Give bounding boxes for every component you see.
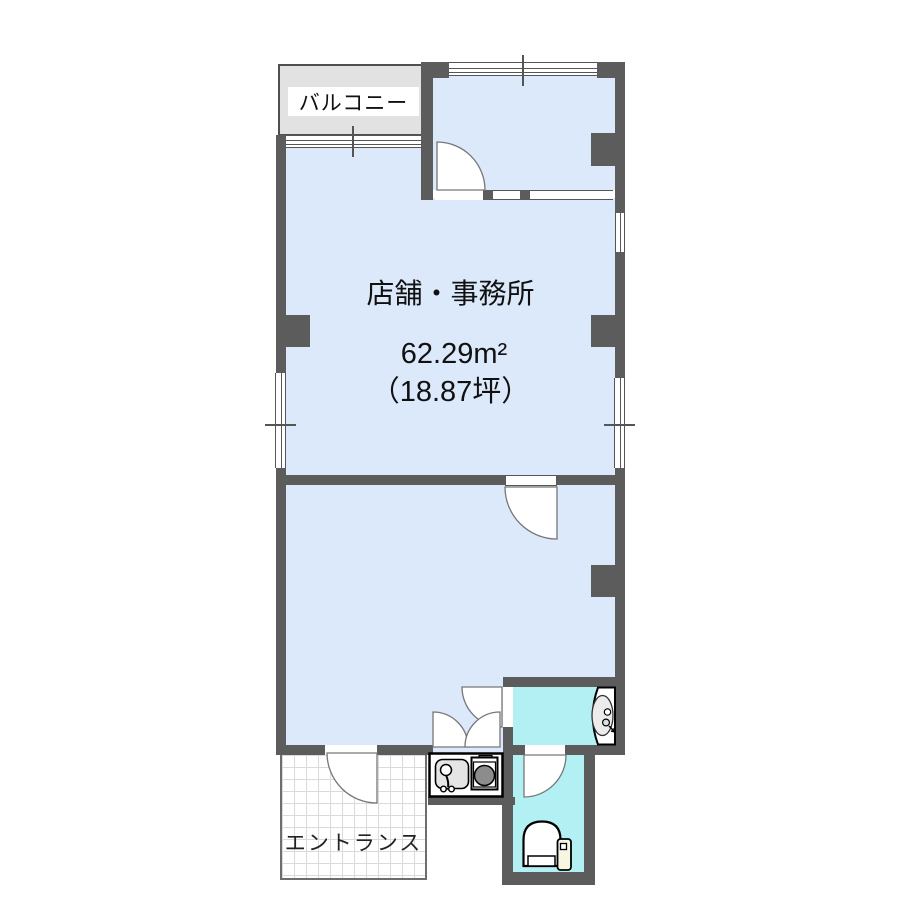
door-opening-washroom xyxy=(503,687,513,727)
kitchen-unit xyxy=(430,754,503,797)
room-fill-washroom xyxy=(513,687,615,745)
wall-ne-top-left-cap xyxy=(421,62,449,78)
wall-washroom-bottom-left xyxy=(503,745,525,755)
area-tsubo-label: （18.87坪） xyxy=(286,368,615,410)
wall-toilet-left xyxy=(502,755,513,885)
faucet-icon xyxy=(441,765,452,776)
faucet-stem xyxy=(446,775,448,787)
kitchen-sink-icon xyxy=(436,760,469,789)
entrance-area xyxy=(280,753,427,880)
balcony-label: バルコニー xyxy=(288,87,419,116)
wall-bottom-left xyxy=(276,745,325,755)
wall-left-lower xyxy=(276,468,286,755)
tick-right-window xyxy=(604,424,635,426)
wall-bottom-mid xyxy=(377,745,433,755)
tick-balcony-window xyxy=(352,126,354,157)
pillar-right-top xyxy=(591,133,615,166)
room-fill-northeast xyxy=(433,76,615,190)
opening-ne-1 xyxy=(493,190,520,200)
door-opening-entrance xyxy=(325,745,377,755)
tick-left-window xyxy=(265,424,296,426)
pillar-right-low xyxy=(591,565,615,597)
room-fill-main-upper-left xyxy=(286,147,421,200)
floor-plan: バルコニー xyxy=(0,0,900,900)
wall-balcony-divider xyxy=(421,62,433,200)
stove-top-bar xyxy=(479,756,492,762)
right-window-upper xyxy=(615,213,625,252)
wall-toilet-bottom xyxy=(502,872,595,885)
kitchen-counter xyxy=(430,754,503,797)
wall-washroom-right xyxy=(615,677,625,755)
wall-ne-bottom-seg2 xyxy=(520,190,530,200)
faucet-handle-right xyxy=(449,786,455,792)
stove-outer xyxy=(472,758,498,790)
wall-left-upper xyxy=(276,135,286,373)
faucet-handle-left xyxy=(441,786,447,792)
wall-kitchen-stub xyxy=(428,797,515,805)
room-name-label: 店舗・事務所 xyxy=(286,272,615,312)
wall-right-upper xyxy=(615,62,625,213)
opening-ne-2 xyxy=(530,190,613,200)
door-opening-toilet xyxy=(525,745,565,755)
room-fill-kitchen-alcove xyxy=(433,745,503,754)
stove-burner-icon xyxy=(475,766,495,786)
room-fill-main xyxy=(286,198,615,475)
left-window xyxy=(275,373,286,468)
wall-ne-bottom-seg1 xyxy=(483,190,493,200)
tick-ne-window xyxy=(522,55,524,86)
entrance-label: エントランス xyxy=(280,827,427,857)
door-opening-mid xyxy=(505,475,557,486)
wall-toilet-right xyxy=(584,755,595,872)
stove-inner xyxy=(474,762,496,787)
wall-washroom-top xyxy=(503,677,625,687)
door-opening-ne xyxy=(435,190,483,200)
right-window-lower xyxy=(614,378,625,468)
wall-washroom-bottom-right xyxy=(565,745,625,755)
wall-right-lower xyxy=(615,468,625,677)
wall-divider-mid xyxy=(276,475,625,485)
area-m2-label: 62.29m² xyxy=(286,338,622,371)
balcony-window xyxy=(286,135,421,148)
room-fill-toilet xyxy=(513,755,584,872)
